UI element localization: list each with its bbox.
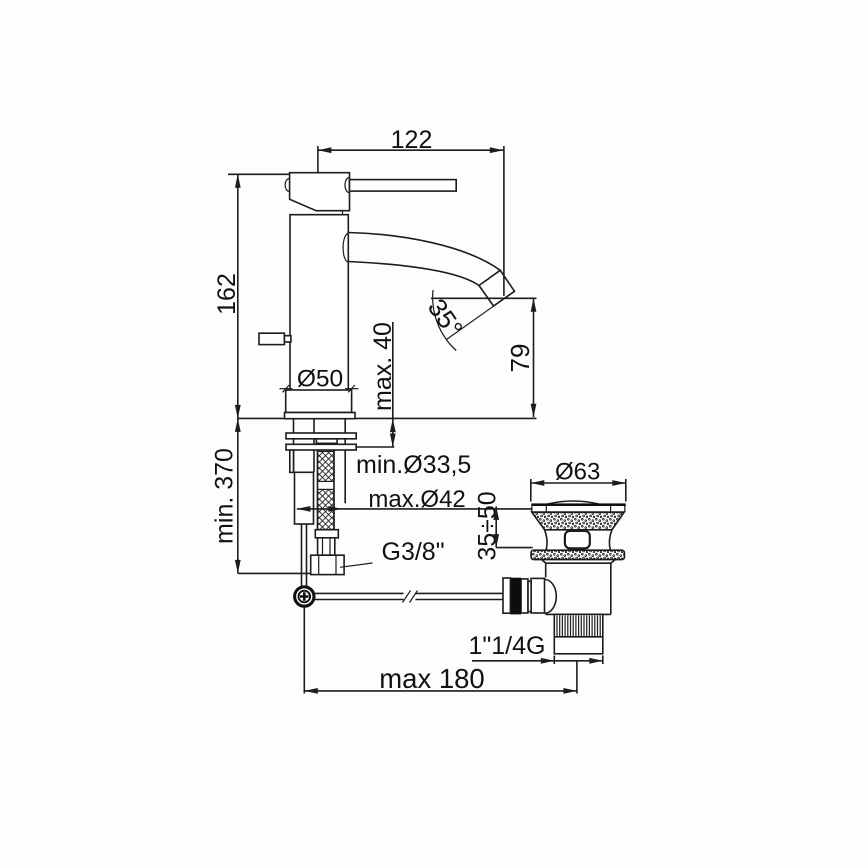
svg-text:162: 162 (213, 273, 241, 315)
svg-text:Ø63: Ø63 (555, 459, 600, 486)
svg-text:Ø50: Ø50 (297, 366, 343, 393)
svg-text:79: 79 (505, 344, 535, 373)
svg-text:35÷50: 35÷50 (474, 491, 502, 560)
svg-text:min.Ø33,5: min.Ø33,5 (356, 451, 471, 479)
svg-text:max 180: max 180 (379, 663, 484, 694)
svg-text:G3/8": G3/8" (382, 538, 445, 566)
svg-text:min. 370: min. 370 (211, 448, 239, 544)
svg-text:1"1/4G: 1"1/4G (469, 632, 546, 660)
